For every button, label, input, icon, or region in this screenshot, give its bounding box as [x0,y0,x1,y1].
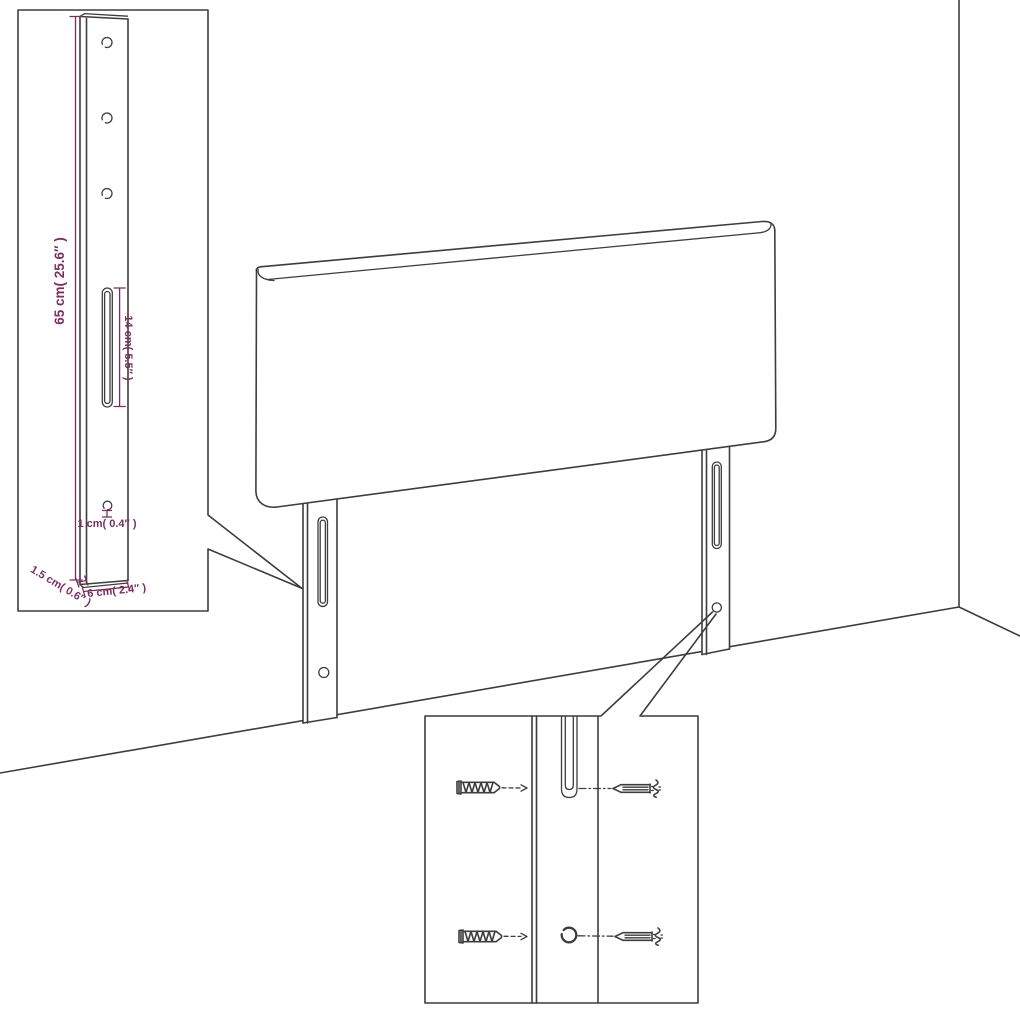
headboard-assembly-diagram: 65 cm( 25.6″ ) 14 cm( 5.5″ ) 1 cm( 0.4″ … [0,0,1020,1020]
dimension-height-label: 65 cm( 25.6″ ) [52,237,67,325]
floor-wall-line-right [959,607,1020,636]
headboard-panel [256,221,776,507]
right-leg [702,439,730,655]
left-leg [303,494,337,723]
diagram-canvas: 65 cm( 25.6″ ) 14 cm( 5.5″ ) 1 cm( 0.4″ … [0,0,1020,1020]
detail-inset-mounting [425,716,698,1003]
detail-inset-leg-dimensions: 65 cm( 25.6″ ) 14 cm( 5.5″ ) 1 cm( 0.4″ … [18,10,208,611]
callout-lines-mounting-detail [601,612,716,716]
callout-lines-leg-detail [208,515,302,588]
dimension-hole-label: 1 cm( 0.4″ ) [77,518,136,530]
dimension-slot-label: 14 cm( 5.5″ ) [122,315,134,381]
